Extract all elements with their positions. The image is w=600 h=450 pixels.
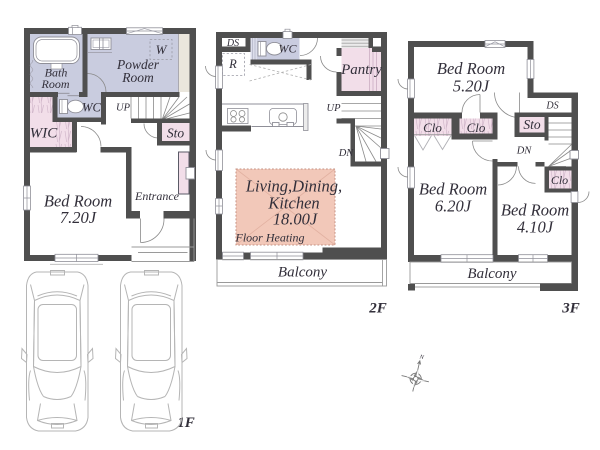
svg-text:Sto: Sto <box>523 117 541 132</box>
svg-text:Balcony: Balcony <box>278 265 327 281</box>
svg-text:WC: WC <box>82 101 101 115</box>
svg-text:WC: WC <box>279 42 298 56</box>
svg-text:DS: DS <box>226 38 239 49</box>
svg-text:Room: Room <box>121 70 154 85</box>
svg-text:UP: UP <box>116 103 131 114</box>
svg-text:6.20J: 6.20J <box>435 197 472 216</box>
svg-text:Room: Room <box>41 77 70 91</box>
svg-text:Bed Room: Bed Room <box>437 59 505 78</box>
svg-text:N: N <box>418 354 425 361</box>
svg-text:Sto: Sto <box>167 126 185 141</box>
svg-text:18.00J: 18.00J <box>273 210 318 229</box>
svg-text:4.10J: 4.10J <box>517 218 554 237</box>
svg-text:Clo: Clo <box>551 173 568 187</box>
svg-text:W: W <box>156 42 168 57</box>
svg-text:5.20J: 5.20J <box>453 77 490 96</box>
svg-text:WIC: WIC <box>30 126 58 142</box>
svg-text:Clo: Clo <box>467 120 486 135</box>
svg-text:Floor Heating: Floor Heating <box>235 231 305 245</box>
svg-text:Entrance: Entrance <box>134 189 180 203</box>
svg-text:UP: UP <box>327 103 342 114</box>
svg-text:Pantry: Pantry <box>340 62 382 78</box>
svg-text:2F: 2F <box>368 301 387 317</box>
svg-text:DN: DN <box>338 148 355 159</box>
svg-text:3F: 3F <box>561 301 580 317</box>
svg-text:Balcony: Balcony <box>467 266 516 282</box>
svg-text:Clo: Clo <box>423 120 442 135</box>
svg-text:R: R <box>228 57 237 71</box>
svg-text:7.20J: 7.20J <box>60 208 97 227</box>
svg-text:1F: 1F <box>177 415 195 431</box>
svg-text:DS: DS <box>545 101 558 112</box>
svg-text:DN: DN <box>516 146 533 157</box>
